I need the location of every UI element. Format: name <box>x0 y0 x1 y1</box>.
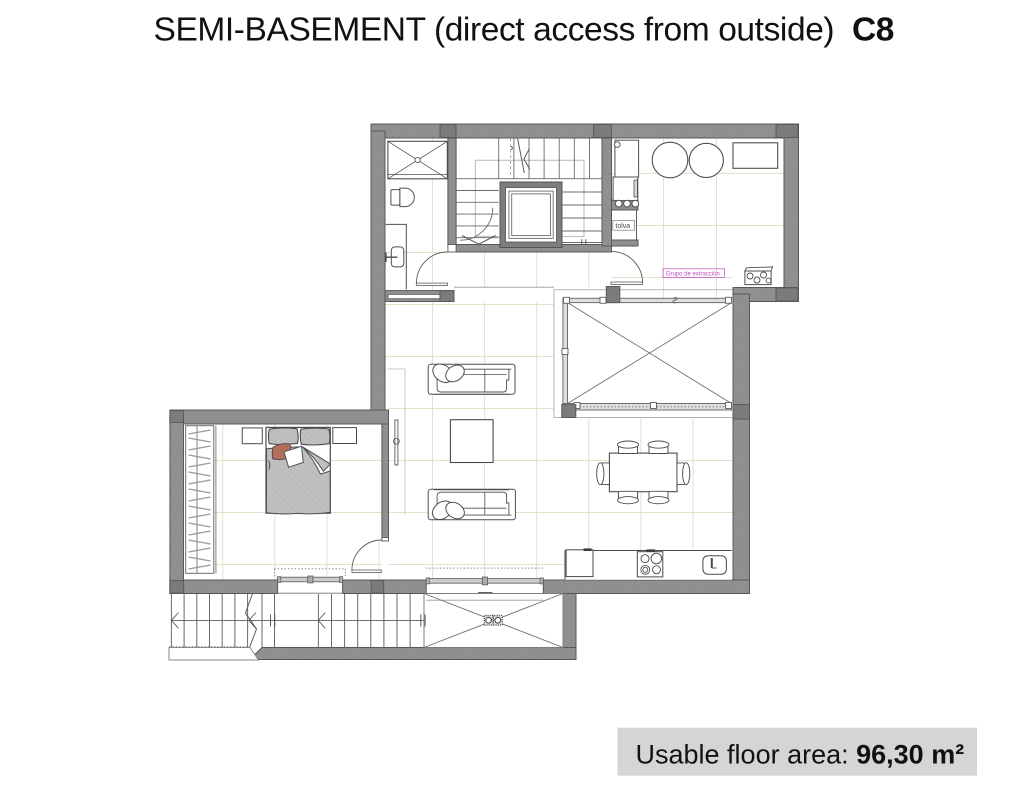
svg-text:SEMI-BASEMENT (direct access f: SEMI-BASEMENT (direct access from outsid… <box>154 12 895 49</box>
svg-text:Grupo de extracción: Grupo de extracción <box>666 271 720 277</box>
svg-text:Usable floor area: 96,30 m²: Usable floor area: 96,30 m² <box>636 740 965 770</box>
svg-text:tolva: tolva <box>615 223 630 230</box>
